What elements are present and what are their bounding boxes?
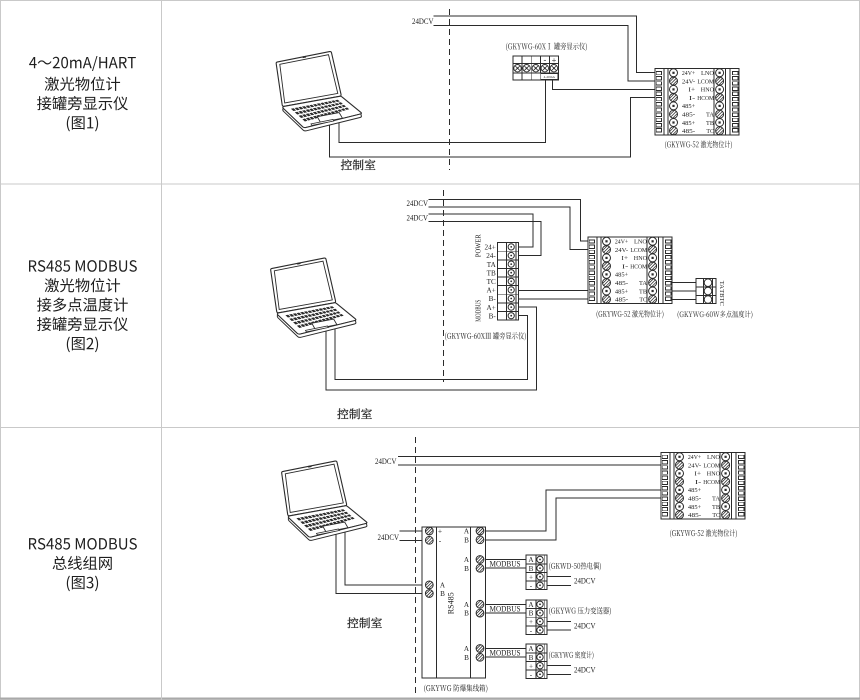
svg-text:485-: 485- [688, 512, 701, 519]
svg-text:485+: 485+ [615, 272, 629, 279]
svg-text:A: A [464, 528, 470, 536]
svg-text:TB: TB [712, 504, 720, 511]
svg-text:LNO: LNO [707, 454, 720, 461]
svg-text:I-: I- [689, 95, 695, 102]
svg-text:+: + [552, 55, 557, 65]
svg-text:485-: 485- [615, 280, 628, 287]
svg-text:4-20mA: 4-20mA [544, 75, 556, 79]
svg-text:TC: TC [706, 128, 714, 135]
svg-text:24-: 24- [486, 252, 496, 260]
svg-text:I-: I- [622, 263, 628, 270]
svg-text:TB: TB [706, 120, 714, 127]
svg-text:B: B [529, 610, 534, 618]
svg-text:MODBUS: MODBUS [475, 300, 483, 322]
svg-text:+: + [529, 618, 533, 626]
svg-text:HCOM: HCOM [630, 263, 647, 270]
svg-text:24DCV: 24DCV [407, 214, 429, 223]
svg-text:MODBUS: MODBUS [490, 605, 521, 614]
svg-text:HNO: HNO [634, 255, 648, 262]
svg-text:24V+: 24V+ [682, 70, 696, 77]
svg-text:MODBUS: MODBUS [490, 560, 521, 569]
svg-text:485-: 485- [682, 128, 695, 135]
svg-text:HCOM: HCOM [703, 479, 720, 486]
svg-text:A: A [528, 645, 534, 653]
svg-text:LCOM: LCOM [630, 247, 647, 254]
svg-text:24DCV: 24DCV [574, 577, 596, 586]
svg-text:24V+: 24V+ [615, 239, 629, 246]
svg-text:LCOM: LCOM [703, 462, 720, 469]
svg-text:TA: TA [718, 281, 725, 289]
svg-text:I-: I- [695, 479, 701, 486]
svg-text:B: B [529, 654, 534, 662]
svg-text:TA: TA [639, 280, 647, 287]
svg-text:A: A [528, 601, 534, 609]
svg-text:485-: 485- [615, 297, 628, 304]
svg-text:24DCV: 24DCV [412, 17, 434, 26]
svg-text:24DCV: 24DCV [574, 622, 596, 631]
svg-text:B-: B- [489, 295, 497, 303]
svg-text:TB: TB [487, 269, 496, 277]
svg-text:A: A [464, 601, 470, 609]
svg-text:LNO: LNO [634, 239, 647, 246]
svg-text:HNO: HNO [701, 87, 715, 94]
svg-text:485+: 485+ [682, 120, 696, 127]
svg-text:I+: I+ [621, 255, 628, 262]
svg-text:24DCV: 24DCV [407, 199, 429, 208]
svg-text:24+: 24+ [485, 244, 496, 252]
svg-text:485+: 485+ [688, 487, 702, 494]
svg-text:B: B [529, 565, 534, 573]
svg-text:A: A [528, 556, 534, 564]
svg-text:I+: I+ [688, 87, 695, 94]
svg-text:485+: 485+ [688, 504, 702, 511]
svg-text:B: B [464, 536, 469, 544]
svg-text:485+: 485+ [682, 103, 696, 110]
svg-text:TA: TA [706, 112, 714, 119]
svg-text:485-: 485- [682, 112, 695, 119]
svg-text:TC: TC [639, 297, 647, 304]
svg-text:HNO: HNO [707, 471, 721, 478]
svg-text:-: - [543, 55, 546, 65]
svg-text:B-: B- [489, 312, 497, 320]
svg-text:MODBUS: MODBUS [490, 649, 521, 658]
svg-text:A+: A+ [487, 304, 496, 312]
svg-text:LCOM: LCOM [697, 78, 714, 85]
svg-text:24V+: 24V+ [688, 454, 702, 461]
svg-text:B: B [464, 610, 469, 618]
svg-text:A: A [464, 645, 470, 653]
svg-text:LNO: LNO [701, 70, 714, 77]
svg-text:TC: TC [487, 278, 496, 286]
svg-text:TC: TC [718, 297, 725, 306]
svg-text:24V-: 24V- [688, 462, 701, 469]
svg-text:485+: 485+ [615, 288, 629, 295]
svg-text:24V-: 24V- [615, 247, 628, 254]
svg-text:+: + [438, 527, 442, 536]
svg-text:RS485: RS485 [446, 592, 455, 614]
svg-text:TB: TB [639, 288, 647, 295]
svg-text:TA: TA [712, 496, 720, 503]
svg-text:B: B [464, 565, 469, 573]
svg-text:+: + [529, 662, 533, 670]
svg-text:B: B [440, 590, 445, 598]
svg-text:HCOM: HCOM [697, 95, 714, 102]
svg-text:24DCV: 24DCV [375, 457, 397, 466]
svg-text:A: A [464, 556, 470, 564]
svg-text:A: A [440, 582, 446, 590]
svg-text:POWER: POWER [475, 234, 483, 257]
svg-text:TA: TA [487, 261, 497, 269]
svg-text:TC: TC [712, 512, 720, 519]
svg-text:24V-: 24V- [682, 78, 695, 85]
svg-text:24DCV: 24DCV [574, 666, 596, 675]
svg-text:485-: 485- [688, 496, 701, 503]
svg-text:A+: A+ [487, 287, 496, 295]
svg-text:+: + [529, 573, 533, 581]
svg-text:24DCV: 24DCV [378, 533, 400, 542]
svg-text:B: B [464, 654, 469, 662]
svg-text:I+: I+ [694, 471, 701, 478]
